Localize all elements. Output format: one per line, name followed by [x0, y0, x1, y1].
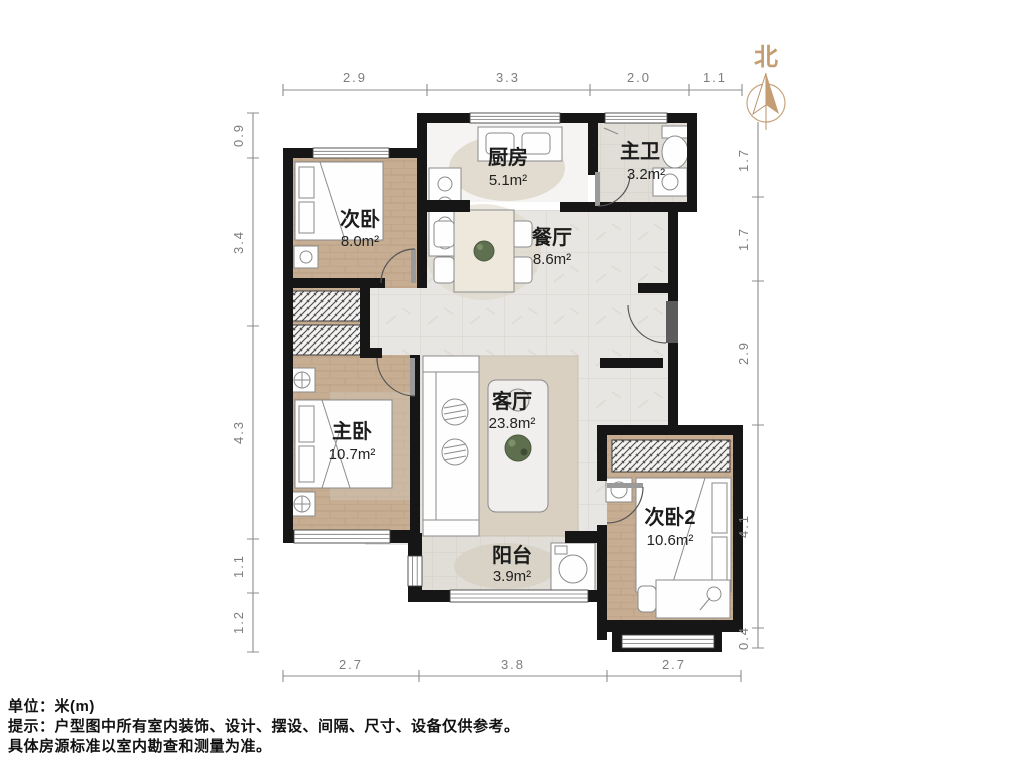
tip-note-2: 具体房源标准以室内勘查和测量为准。 [8, 737, 520, 757]
dim-label: 4.1 [736, 514, 751, 538]
balcony-window [450, 590, 588, 602]
bedroom-b-name: 次卧2 [644, 505, 695, 529]
wall [417, 212, 427, 288]
dim-label: 2.9 [736, 341, 751, 365]
dim-label: 1.1 [231, 554, 246, 578]
compass-needle-left [753, 73, 766, 114]
master-bedroom-name: 主卧 [332, 419, 372, 443]
disclaimer-notes: 单位：米(m) 提示：户型图中所有室内装饰、设计、摆设、间隔、尺寸、设备仅供参考… [8, 697, 520, 756]
master-wardrobe-1 [291, 291, 361, 321]
living-sofa [423, 356, 479, 536]
master-bath-area: 3.2m² [627, 166, 665, 183]
wall [638, 283, 678, 293]
dimension-right [752, 122, 764, 648]
dim-label: 3.4 [231, 230, 246, 254]
dimension-left [247, 113, 259, 652]
balcony-washer [551, 543, 595, 591]
wall [283, 148, 293, 543]
bedroom-b-desk [638, 580, 730, 618]
north-label: 北 [754, 44, 778, 71]
bedroom-a-nightstand [294, 246, 318, 268]
kitchen-area: 5.1m² [489, 172, 527, 189]
dim-label: 2.9 [343, 70, 367, 85]
bedroom-b-bay-window [622, 635, 714, 648]
master-bedroom-window [294, 530, 390, 543]
wall [600, 358, 663, 368]
dim-label: 1.7 [736, 227, 751, 251]
wall [360, 348, 382, 358]
dim-label: 4.3 [231, 420, 246, 444]
wall [560, 202, 697, 212]
dimension-top [283, 84, 742, 96]
tip-note: 提示：户型图中所有室内装饰、设计、摆设、间隔、尺寸、设备仅供参考。 [8, 717, 520, 737]
wall [597, 425, 743, 435]
living-name: 客厅 [491, 389, 532, 413]
unit-note: 单位：米(m) [8, 697, 520, 717]
floor-plan-page: 厨房 5.1m² 主卫 3.2m² 次卧 8.0m² 餐厅 8.6m² 主卧 1… [0, 0, 1024, 768]
dim-label: 2.0 [627, 70, 651, 85]
north-compass: 北 [747, 44, 785, 130]
wall [417, 200, 470, 212]
bedroom-b-area: 10.6m² [647, 532, 694, 549]
dim-label: 1.1 [703, 70, 727, 85]
master-bedroom-area: 10.7m² [329, 446, 376, 463]
dim-label: 3.8 [501, 657, 525, 672]
dim-label: 0.9 [231, 123, 246, 147]
dim-label: 1.2 [231, 610, 246, 634]
dining-area: 8.6m² [533, 251, 571, 268]
bedroom-b-wardrobe [612, 440, 730, 472]
wall [360, 288, 370, 355]
floor-plan-drawing: 厨房 5.1m² 主卫 3.2m² 次卧 8.0m² 餐厅 8.6m² 主卧 1… [0, 0, 1024, 768]
master-wardrobe-2 [291, 325, 361, 355]
wall [588, 113, 598, 175]
bedroom-b-nightstand [606, 478, 632, 502]
wall [283, 278, 385, 288]
kitchen-name: 厨房 [488, 145, 528, 169]
dim-label: 0.4 [736, 626, 751, 650]
wall [417, 113, 427, 212]
bedroom-a-name: 次卧 [340, 207, 380, 231]
kitchen-window [470, 113, 560, 123]
master-bath-name: 主卫 [620, 139, 660, 163]
dim-label: 2.7 [662, 657, 686, 672]
dim-label: 2.7 [339, 657, 363, 672]
balcony-area: 3.9m² [493, 568, 531, 585]
bedroom-a-area: 8.0m² [341, 233, 379, 250]
bath-toilet [662, 126, 688, 168]
balcony-side-window [408, 556, 422, 586]
dim-label: 3.3 [496, 70, 520, 85]
wall [687, 113, 697, 212]
wall [668, 343, 678, 427]
bedroom-a-window [313, 148, 389, 158]
living-area: 23.8m² [489, 415, 536, 432]
bath-window [605, 113, 667, 123]
dim-label: 1.7 [736, 148, 751, 172]
balcony-name: 阳台 [492, 543, 532, 567]
master-bed [295, 400, 392, 488]
wall [597, 425, 607, 481]
dining-name: 餐厅 [532, 225, 572, 249]
compass-needle-right [766, 73, 779, 114]
